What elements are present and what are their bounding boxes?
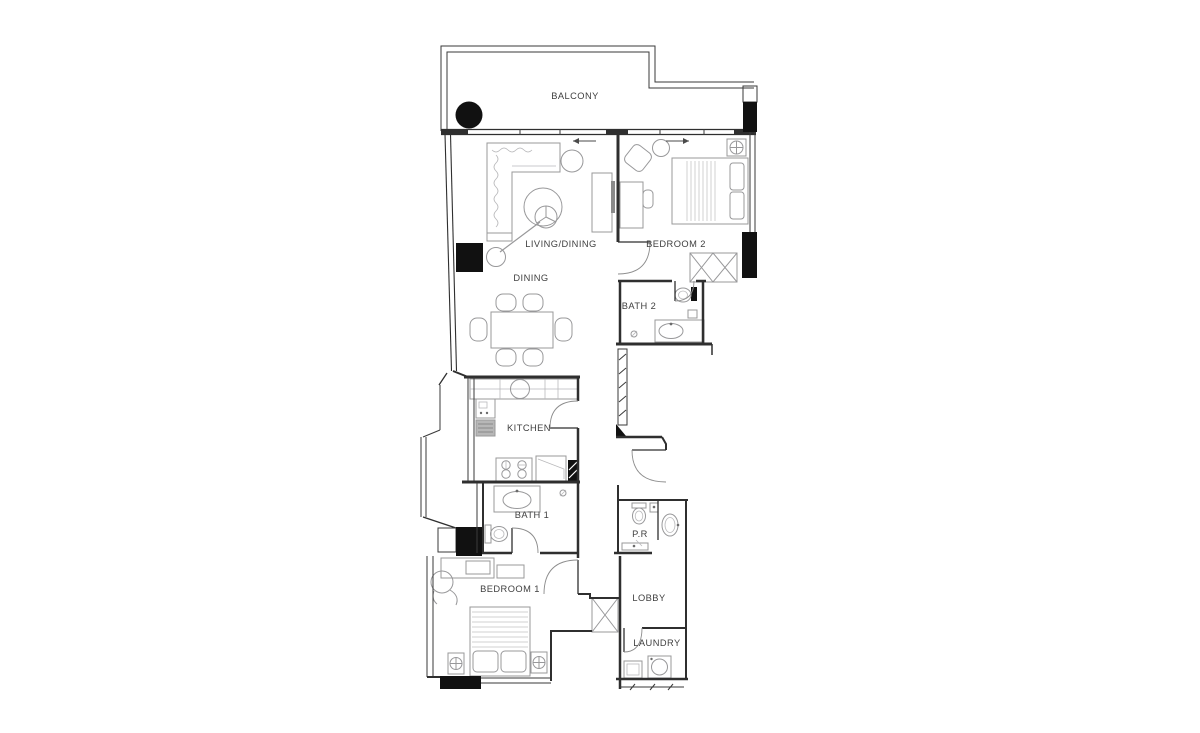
bath1-toilet-icon [485,525,508,543]
duct-box [438,528,456,552]
room-label-pr: P.R [632,529,648,539]
bedroom1-door-swing [544,560,578,594]
washer-icon [648,656,671,678]
laundry-sink-icon [624,661,642,678]
facade-wall [441,129,756,135]
kitchen-fridge-sink-icon [476,399,495,436]
entry-door-swing [632,450,666,482]
room-label-bath-2: BATH 2 [622,301,657,311]
balcony-railing [441,46,754,131]
room-label-bedroom-1: BEDROOM 1 [480,584,540,594]
kitchen-door-swing [550,401,578,428]
balcony-table-icon [456,102,483,129]
kitchen-counter-icon [470,379,578,399]
bedroom2-bed-icon [672,158,748,224]
floor-lamp-icon [487,188,563,267]
bath1-shower-icon [560,490,566,496]
room-label-bedroom-2: BEDROOM 2 [646,239,706,249]
pr-toilet-icon [632,503,658,524]
bedroom1-wardrobe-icon [592,598,618,632]
left-exterior-wall [421,134,468,528]
room-label-balcony: BALCONY [551,91,599,101]
dining-table-icon [470,294,572,366]
sofa-icon [487,143,560,241]
bedroom2-wardrobe-icon [690,253,737,282]
bedroom2-desk-icon [620,182,653,228]
bedroom1-bed-icon [470,607,530,676]
bath2-toilet-icon [675,287,697,318]
floor-plan-page: BALCONY LIVING/DINING DINING BEDROOM 2 B… [0,0,1200,733]
pr-basin-icon [662,514,679,536]
round-chair-icon [561,150,583,172]
sliding-door-arrow-icons [573,138,689,144]
bath2-walls [616,281,712,355]
pr-counter-icon [622,540,648,550]
bath2-vanity-icon [631,320,704,342]
shaft-wall [616,349,627,436]
bedroom1-desk-icon [441,558,524,578]
column-living [456,243,483,272]
room-label-bath-1: BATH 1 [515,510,550,520]
entry-walls [616,437,666,482]
floor-plan-drawing: BALCONY LIVING/DINING DINING BEDROOM 2 B… [0,0,1200,733]
bedroom2-nightstand-lamp-icon [727,139,746,156]
living-bedroom2-wall [618,134,650,274]
tv-console-icon [592,173,615,232]
bedroom1-chair-icon [431,571,457,605]
room-label-laundry: LAUNDRY [633,638,680,648]
room-label-kitchen: KITCHEN [507,423,551,433]
room-label-living-dining: LIVING/DINING [525,239,596,249]
bath1-vanity-icon [494,486,540,512]
kitchen-stove-icon [496,458,532,481]
column-left [456,527,482,556]
room-label-dining: DINING [513,273,548,283]
bedroom2-armchair-icon [623,140,670,174]
room-label-lobby: LOBBY [632,593,665,603]
kitchen-worktop-icon [536,456,578,482]
bath1-door-swing [512,528,538,553]
